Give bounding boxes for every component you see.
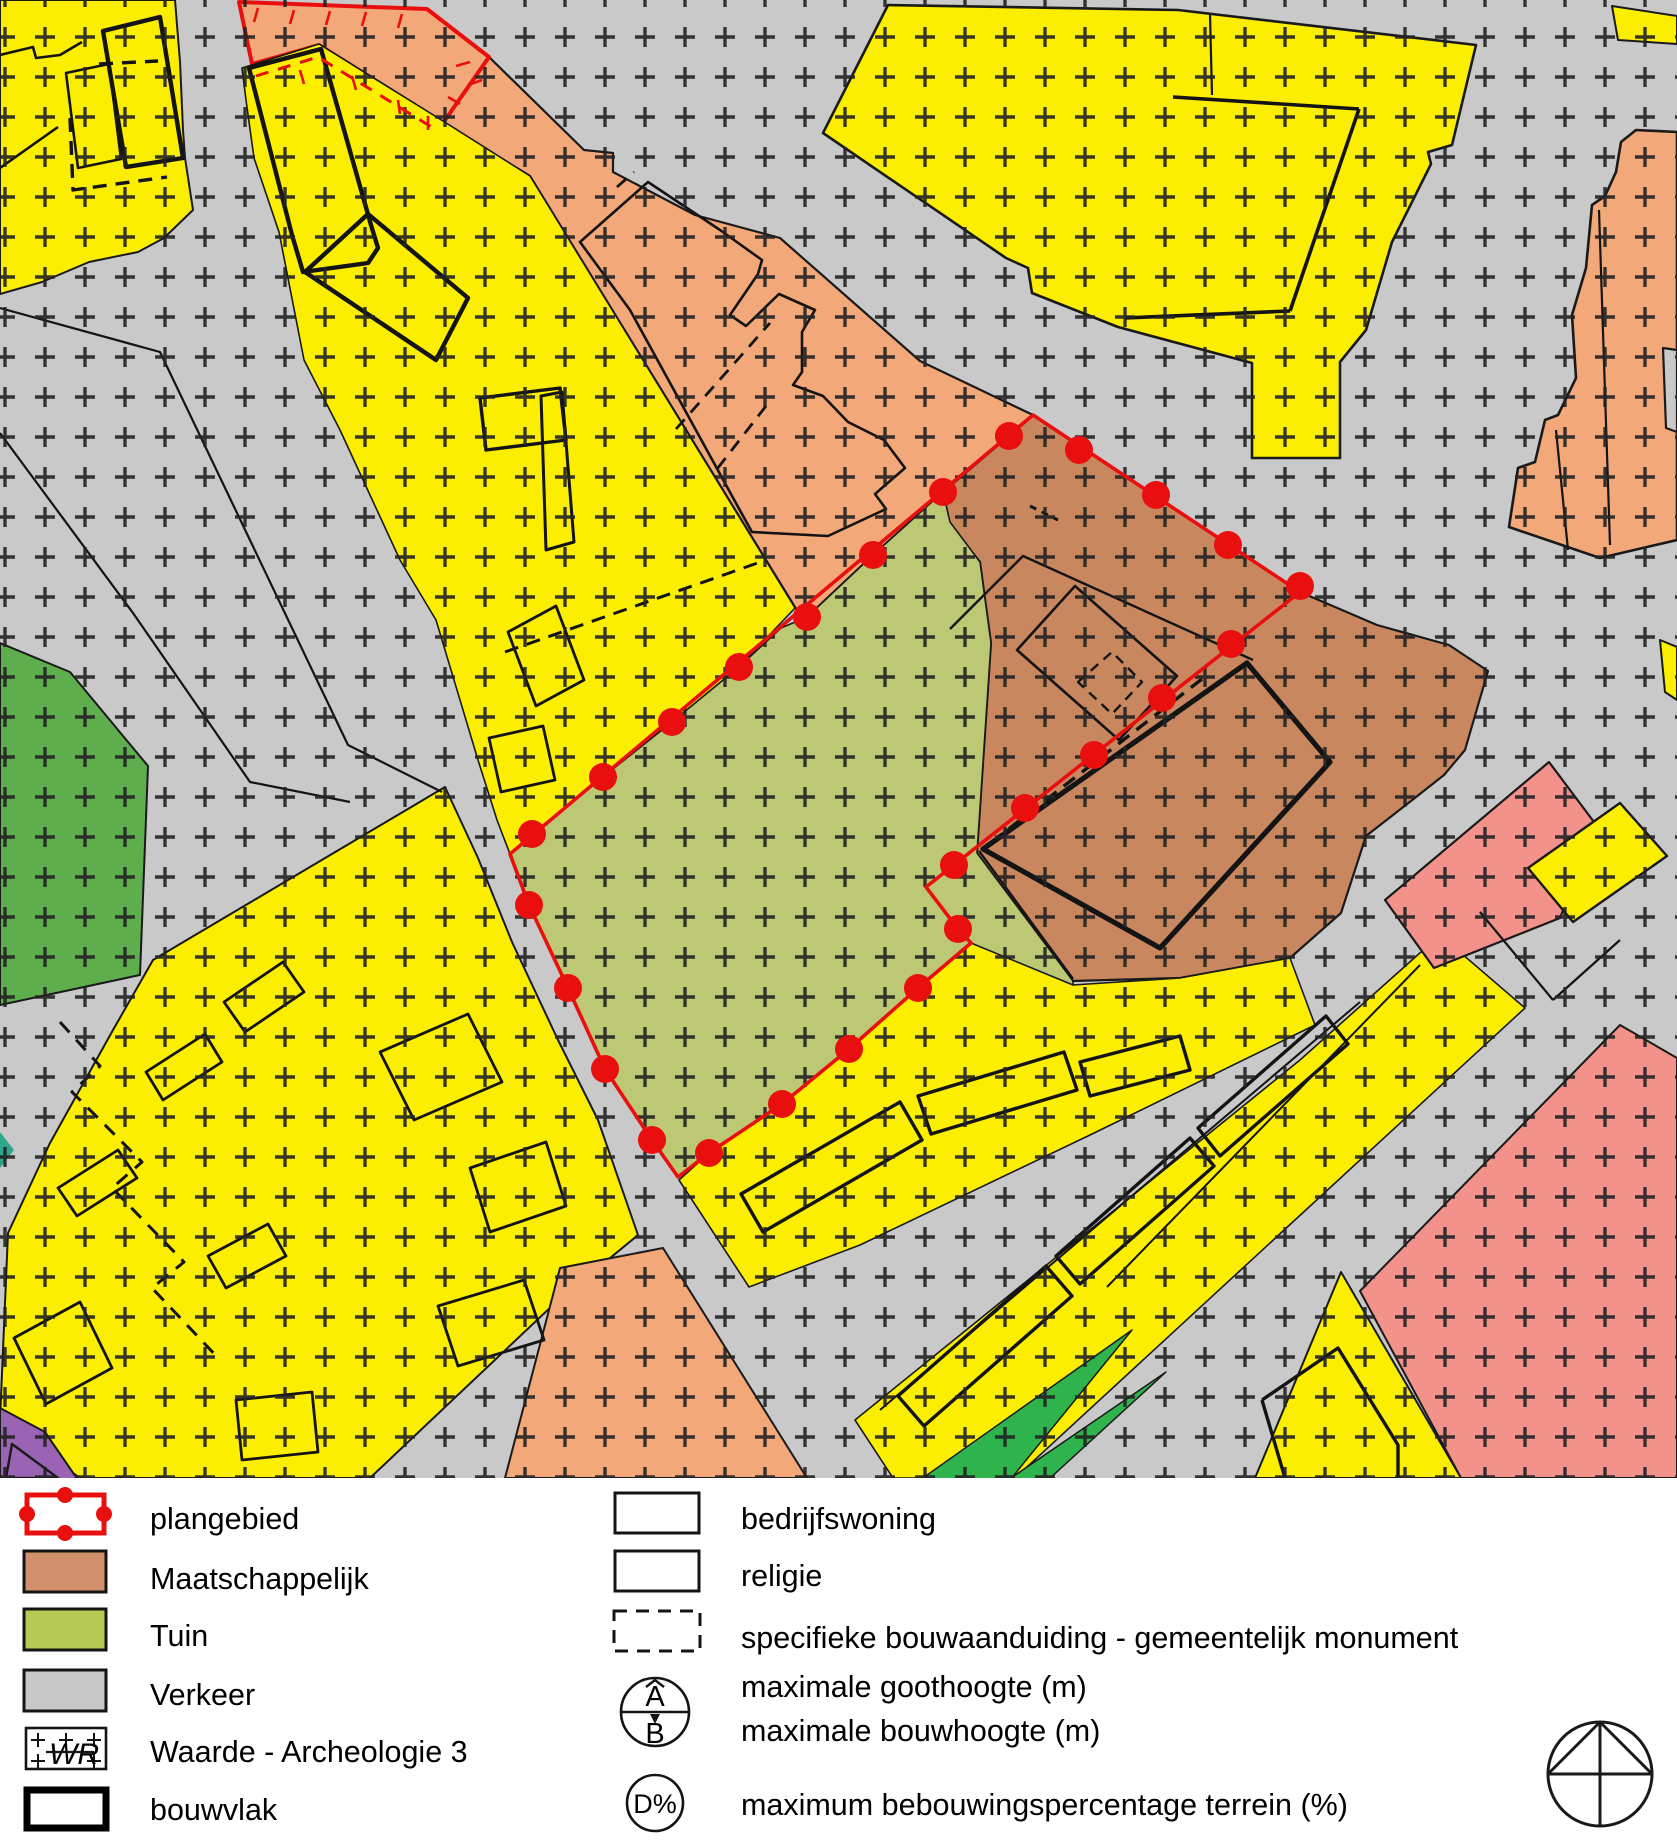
- svg-text:plangebied: plangebied: [150, 1502, 299, 1536]
- svg-text:bedrijfswoning: bedrijfswoning: [741, 1502, 936, 1536]
- svg-text:D%: D%: [633, 1789, 677, 1819]
- svg-text:Waarde - Archeologie 3: Waarde - Archeologie 3: [150, 1735, 468, 1769]
- svg-text:Maatschappelijk: Maatschappelijk: [150, 1562, 369, 1596]
- svg-text:B: B: [645, 1718, 664, 1750]
- svg-text:Verkeer: Verkeer: [150, 1678, 255, 1712]
- svg-text:religie: religie: [741, 1559, 822, 1593]
- svg-text:bouwvlak: bouwvlak: [150, 1793, 278, 1827]
- svg-text:WR: WR: [49, 1738, 99, 1771]
- svg-text:maximale goothoogte (m): maximale goothoogte (m): [741, 1670, 1087, 1704]
- svg-text:maximale bouwhoogte (m): maximale bouwhoogte (m): [741, 1714, 1100, 1748]
- svg-text:maximum bebouwingspercentage t: maximum bebouwingspercentage terrein (%): [741, 1788, 1348, 1822]
- svg-text:specifieke bouwaanduiding - ge: specifieke bouwaanduiding - gemeentelijk…: [741, 1621, 1459, 1655]
- svg-text:Tuin: Tuin: [150, 1619, 208, 1653]
